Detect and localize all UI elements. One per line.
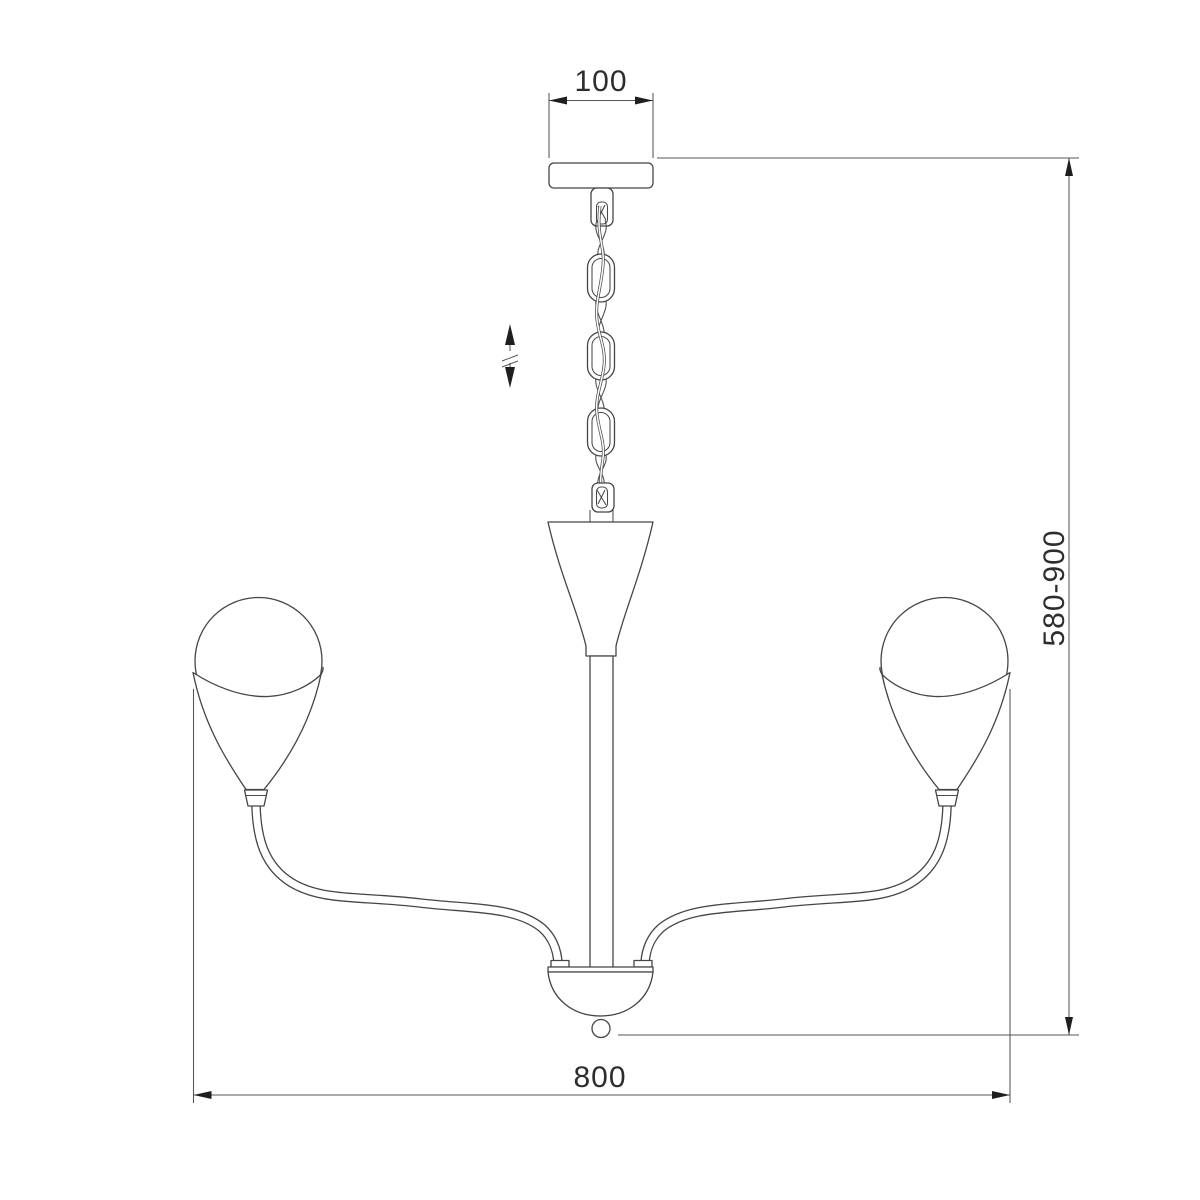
right-arm-tube-fill <box>645 806 947 963</box>
finial-ball <box>592 1020 610 1038</box>
arrow-down-icon <box>1065 1017 1073 1035</box>
hub-bowl <box>548 972 653 1016</box>
bottom-hub <box>548 961 653 1038</box>
arrow-right-icon <box>992 1091 1010 1099</box>
arrow-up-icon <box>1065 158 1073 176</box>
arrow-left-icon <box>194 1091 212 1099</box>
up-arrow-icon <box>505 324 515 345</box>
ceiling-canopy <box>549 163 653 188</box>
height-adjust-icon <box>502 324 518 388</box>
left-collar <box>245 790 268 806</box>
down-arrow-icon <box>505 367 515 388</box>
arrow-left-icon <box>549 97 567 105</box>
dim-canopy-width: 100 <box>549 65 653 158</box>
right-arm <box>645 806 947 963</box>
chandelier-dimension-drawing: 100 580-900 800 <box>0 0 1200 1200</box>
suspension-chain <box>588 188 615 522</box>
dim-label-height-range: 580-900 <box>1038 529 1071 646</box>
dim-label-canopy-width: 100 <box>574 65 627 98</box>
drawing-canvas: 100 580-900 800 <box>0 0 1200 1200</box>
left-arm-tube-fill <box>256 806 558 963</box>
right-arm-boss <box>634 961 652 968</box>
hub-plate <box>548 967 653 972</box>
chain-top-holder <box>591 188 613 226</box>
arrow-right-icon <box>635 97 653 105</box>
center-column <box>590 656 613 968</box>
right-collar <box>936 790 959 806</box>
left-arm-boss <box>551 961 569 968</box>
left-arm <box>256 806 558 963</box>
trumpet-body <box>548 522 653 656</box>
dim-label-overall-width: 800 <box>573 1061 626 1094</box>
